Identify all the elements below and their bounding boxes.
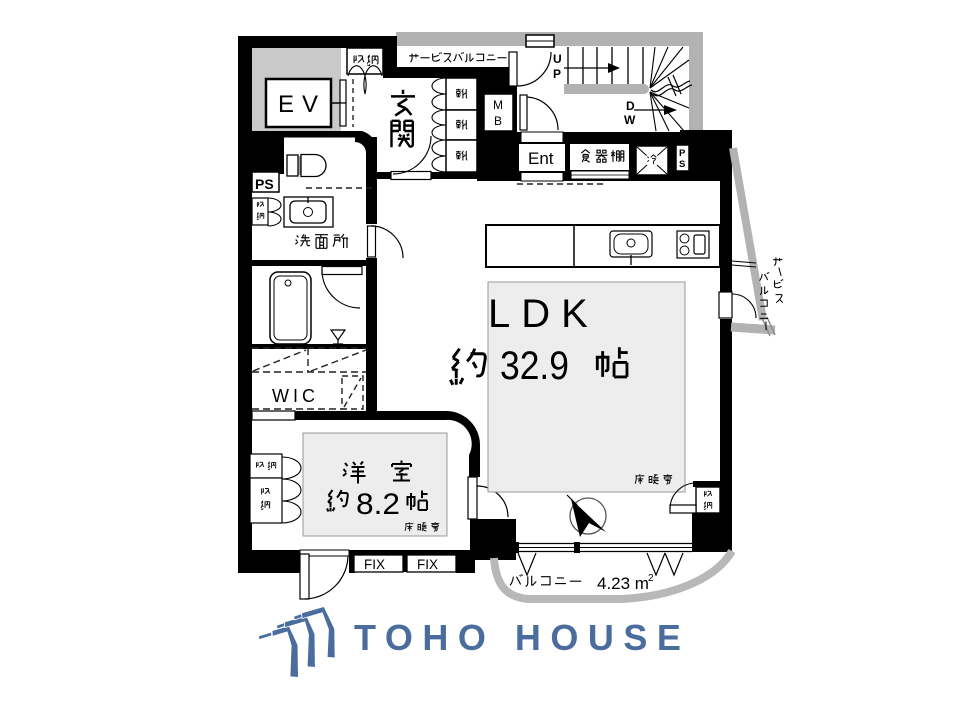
svg-text:PS: PS [255,176,274,192]
svg-text:M: M [493,98,503,112]
svg-text:TOHO HOUSE: TOHO HOUSE [354,617,690,658]
svg-text:FIX: FIX [364,557,385,572]
svg-text:P: P [679,148,686,159]
svg-text:EV: EV [278,91,326,118]
svg-text:D: D [626,99,635,113]
svg-text:LDK: LDK [488,292,599,336]
svg-text:Ent: Ent [528,149,554,168]
svg-text:W: W [624,113,636,127]
svg-text:2: 2 [648,573,654,584]
svg-text:P: P [553,67,561,81]
svg-text:FIX: FIX [417,557,438,572]
svg-text:4.23 m: 4.23 m [597,574,649,593]
svg-text:S: S [679,159,685,170]
svg-text:32.9: 32.9 [500,344,569,388]
svg-text:U: U [553,52,562,66]
svg-text:B: B [494,114,502,128]
svg-text:8.2: 8.2 [356,488,400,521]
svg-text:WIC: WIC [272,386,319,406]
